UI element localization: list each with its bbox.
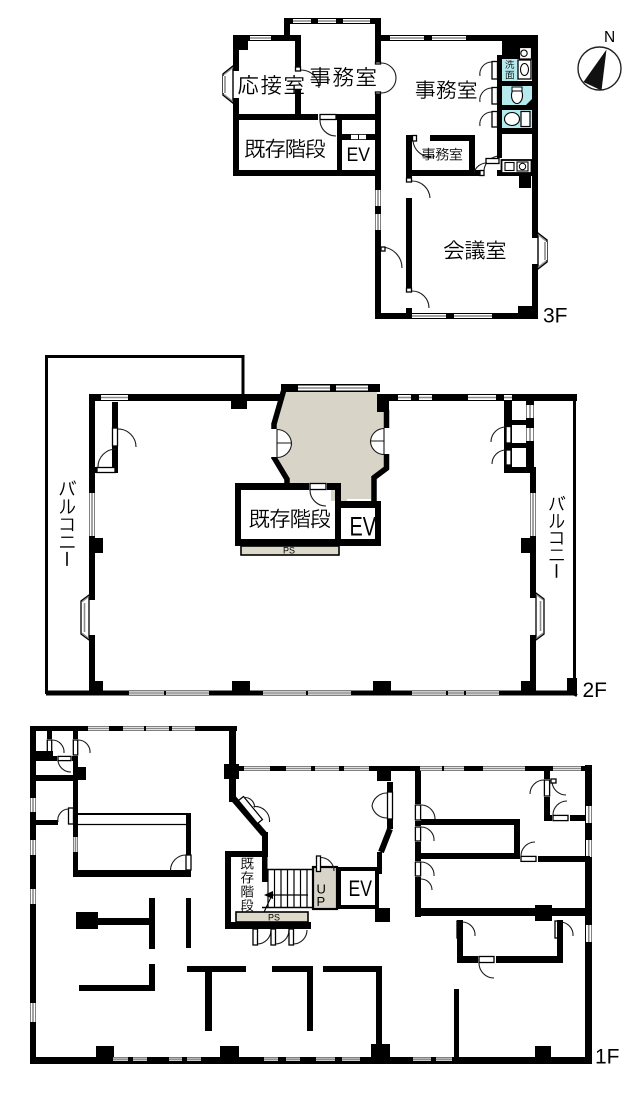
svg-text:PS: PS — [283, 546, 295, 557]
svg-text:EV: EV — [349, 876, 373, 901]
svg-text:3F: 3F — [543, 305, 568, 328]
svg-text:2F: 2F — [583, 679, 608, 702]
svg-text:P: P — [317, 894, 326, 909]
svg-text:EV: EV — [350, 512, 377, 542]
svg-text:N: N — [604, 29, 615, 46]
svg-text:EV: EV — [347, 144, 371, 166]
svg-text:PS: PS — [268, 913, 280, 924]
svg-text:1F: 1F — [595, 1046, 620, 1069]
